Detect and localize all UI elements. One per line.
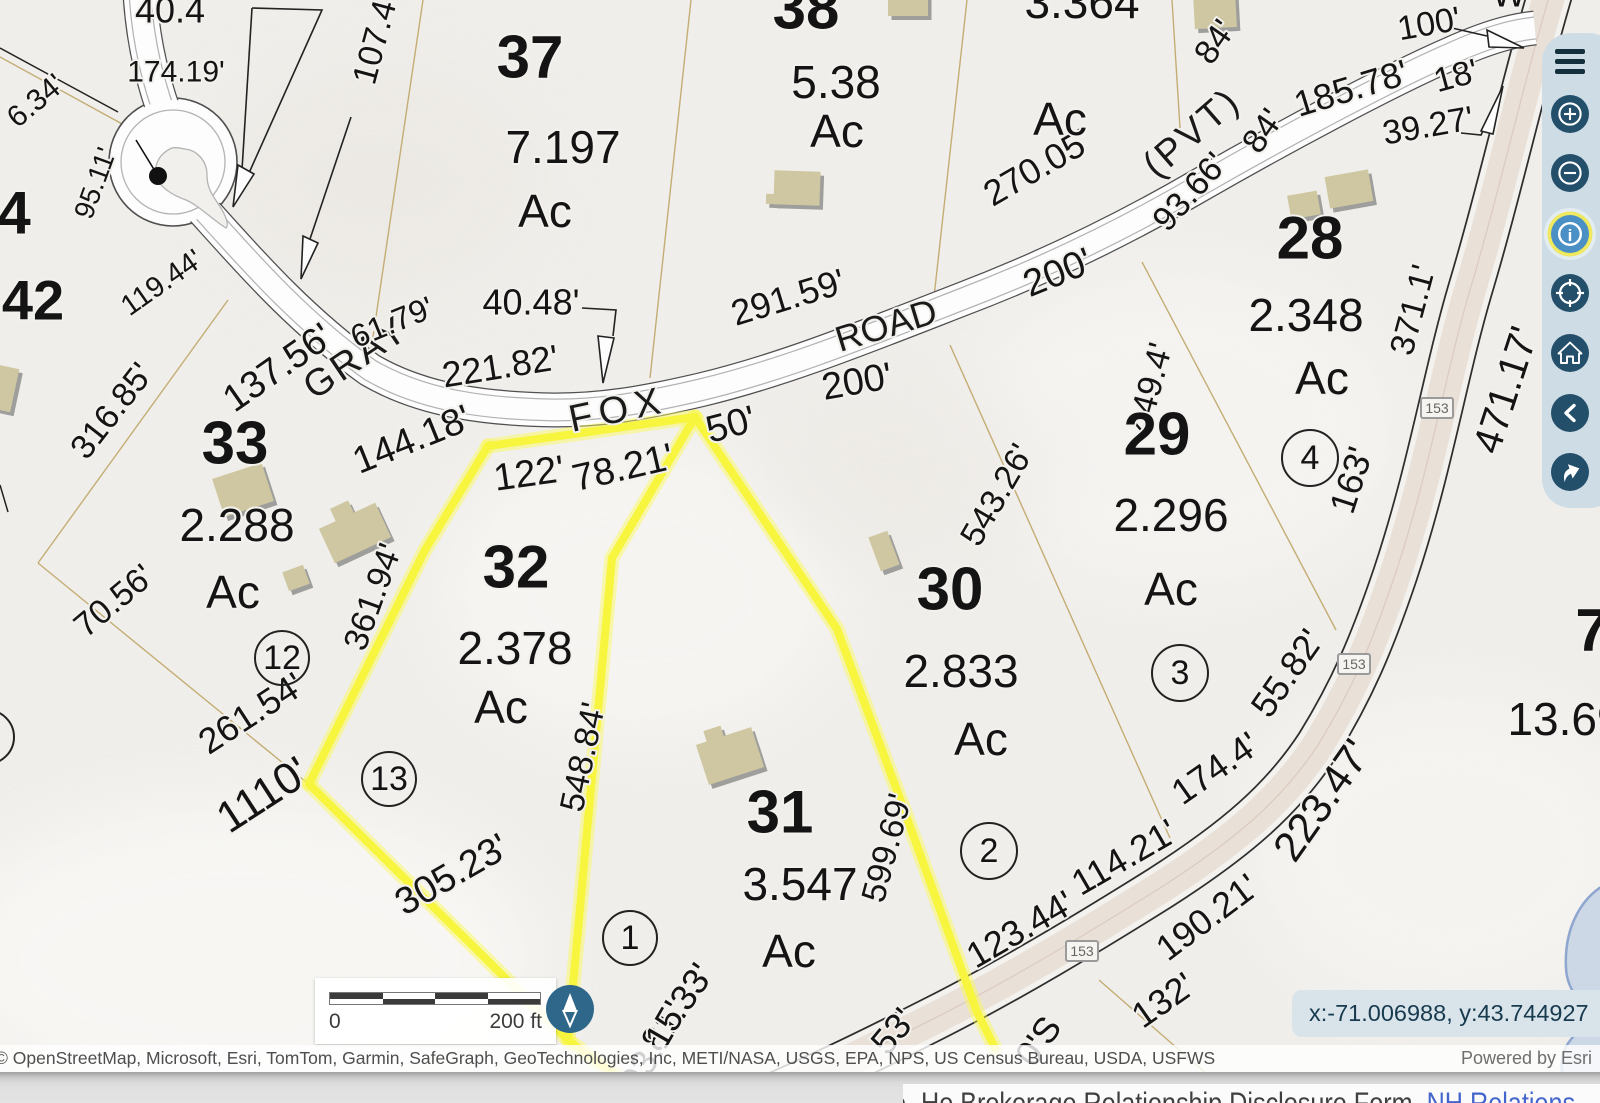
svg-text:7: 7	[1575, 597, 1600, 664]
svg-text:7.197: 7.197	[505, 121, 620, 173]
svg-text:2: 2	[980, 832, 999, 870]
svg-text:2.288: 2.288	[179, 499, 294, 551]
svg-text:31: 31	[747, 779, 814, 846]
svg-text:37: 37	[497, 24, 564, 91]
svg-text:2.348: 2.348	[1248, 289, 1363, 341]
svg-text:153: 153	[1425, 400, 1449, 416]
svg-text:153: 153	[1070, 943, 1094, 959]
svg-text:13.69: 13.69	[1507, 693, 1600, 745]
svg-text:3: 3	[1171, 654, 1190, 692]
svg-text:i: i	[1568, 226, 1573, 245]
svg-text:38: 38	[773, 0, 840, 42]
svg-text:1: 1	[621, 919, 640, 957]
svg-text:Ac: Ac	[1144, 563, 1198, 615]
svg-text:29: 29	[1124, 401, 1191, 468]
svg-text:3.547: 3.547	[742, 858, 857, 910]
svg-text:Ac: Ac	[810, 105, 864, 157]
svg-text:12: 12	[263, 639, 301, 677]
svg-text:40.48': 40.48'	[483, 282, 580, 323]
svg-text:13: 13	[370, 760, 408, 798]
svg-text:Ac: Ac	[518, 185, 572, 237]
svg-text:Ac: Ac	[762, 925, 816, 977]
svg-text:153: 153	[1342, 656, 1366, 672]
svg-text:4: 4	[0, 180, 31, 247]
svg-text:40.4: 40.4	[135, 0, 205, 31]
svg-text:Ac: Ac	[1295, 352, 1349, 404]
svg-text:2.296: 2.296	[1113, 489, 1228, 541]
svg-text:Ac: Ac	[206, 566, 260, 618]
svg-text:32: 32	[483, 534, 550, 601]
svg-text:30: 30	[917, 556, 984, 623]
svg-text:2.378: 2.378	[457, 622, 572, 674]
svg-text:174.19': 174.19'	[127, 56, 225, 89]
svg-text:33: 33	[202, 410, 269, 477]
svg-text:42: 42	[2, 269, 64, 332]
svg-text:5.38: 5.38	[791, 56, 881, 108]
svg-text:W: W	[1492, 0, 1526, 15]
svg-text:Ac: Ac	[474, 681, 528, 733]
svg-text:2.833: 2.833	[903, 645, 1018, 697]
svg-text:4: 4	[1301, 439, 1320, 477]
svg-text:Ac: Ac	[1033, 93, 1087, 145]
svg-text:28: 28	[1277, 205, 1344, 272]
svg-text:3.364: 3.364	[1024, 0, 1139, 28]
svg-text:Ac: Ac	[954, 713, 1008, 765]
